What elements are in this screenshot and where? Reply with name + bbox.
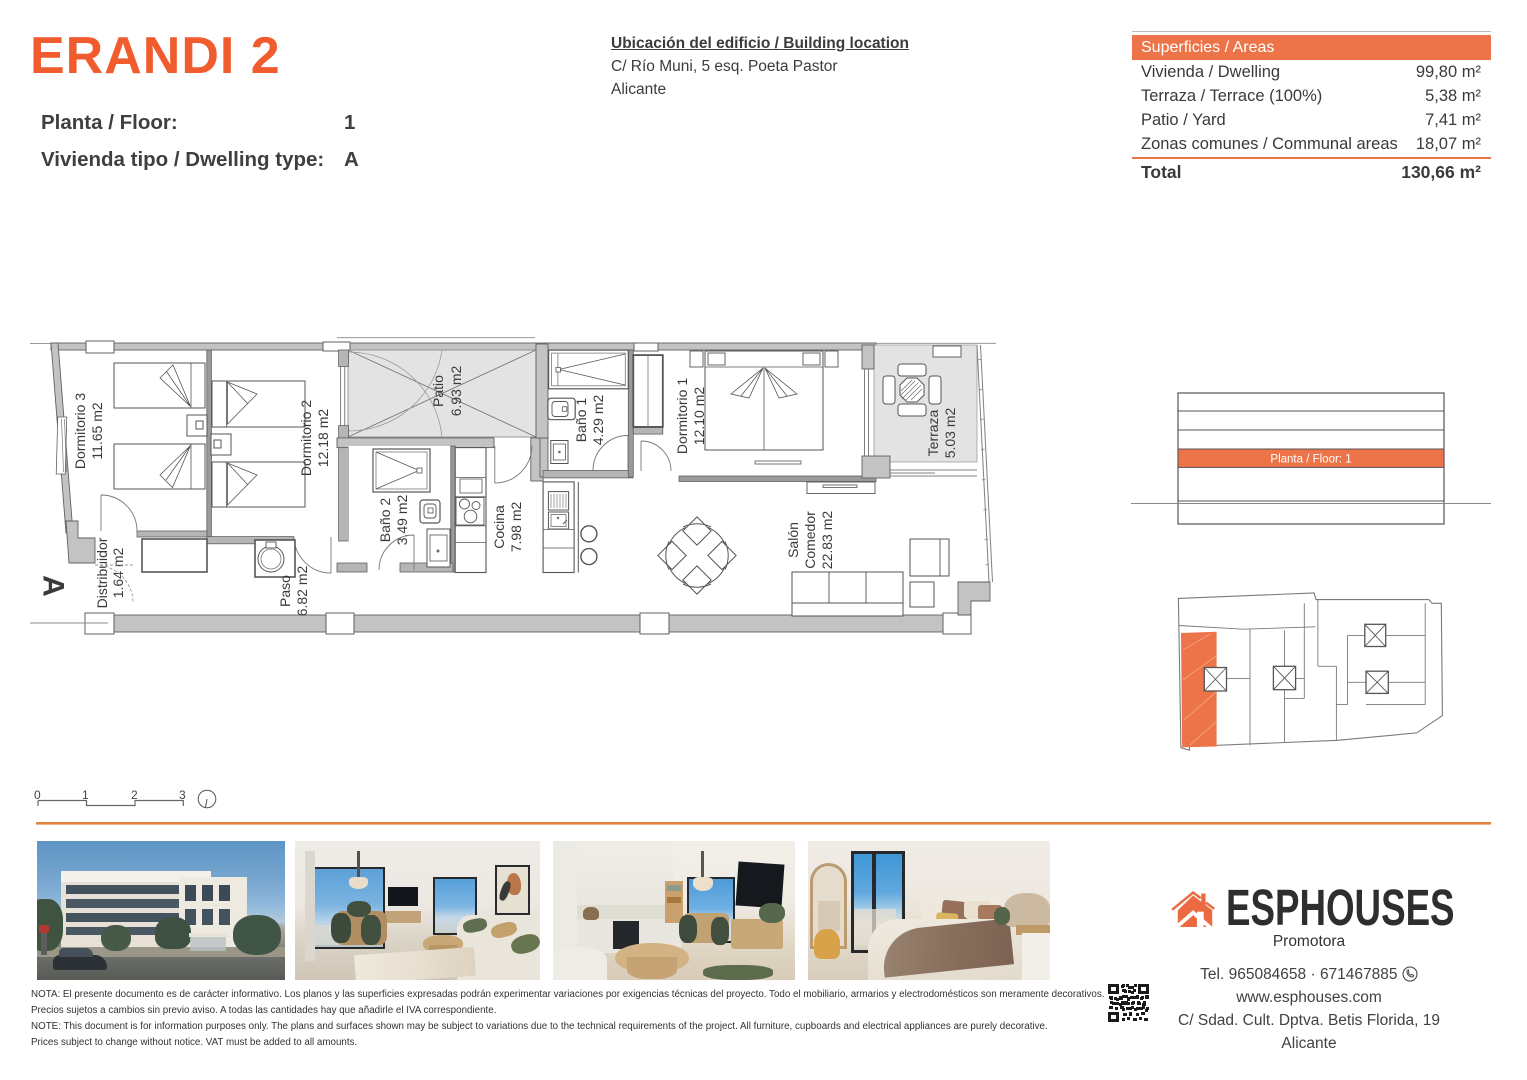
svg-text:11.65 m2: 11.65 m2 (89, 402, 105, 460)
svg-text:22.83 m2: 22.83 m2 (819, 511, 835, 570)
svg-text:4.29 m2: 4.29 m2 (590, 394, 606, 445)
svg-text:1.64 m2: 1.64 m2 (110, 547, 126, 598)
svg-text:Planta / Floor: 1: Planta / Floor: 1 (1270, 454, 1351, 466)
svg-text:Comedor: Comedor (802, 511, 818, 569)
svg-text:A: A (37, 575, 70, 597)
svg-text:Paso: Paso (277, 575, 293, 607)
svg-text:Terraza: Terraza (925, 409, 941, 456)
svg-text:5.03 m2: 5.03 m2 (942, 407, 958, 458)
svg-text:Cocina: Cocina (491, 505, 507, 549)
svg-text:Dormitorio 3: Dormitorio 3 (72, 393, 88, 469)
svg-text:Dormitorio 1: Dormitorio 1 (674, 378, 690, 454)
svg-text:7.98 m2: 7.98 m2 (508, 501, 524, 552)
svg-text:Distribuidor: Distribuidor (94, 537, 110, 608)
svg-text:3.49 m2: 3.49 m2 (394, 494, 410, 545)
svg-text:Salón: Salón (785, 522, 801, 558)
svg-text:6.93 m2: 6.93 m2 (448, 365, 464, 416)
svg-text:Dormitorio 2: Dormitorio 2 (298, 400, 314, 476)
svg-text:12.18 m2: 12.18 m2 (315, 409, 331, 468)
svg-text:Patio: Patio (430, 375, 446, 407)
svg-text:6.82 m2: 6.82 m2 (294, 565, 310, 616)
svg-text:Baño 2: Baño 2 (377, 498, 393, 543)
